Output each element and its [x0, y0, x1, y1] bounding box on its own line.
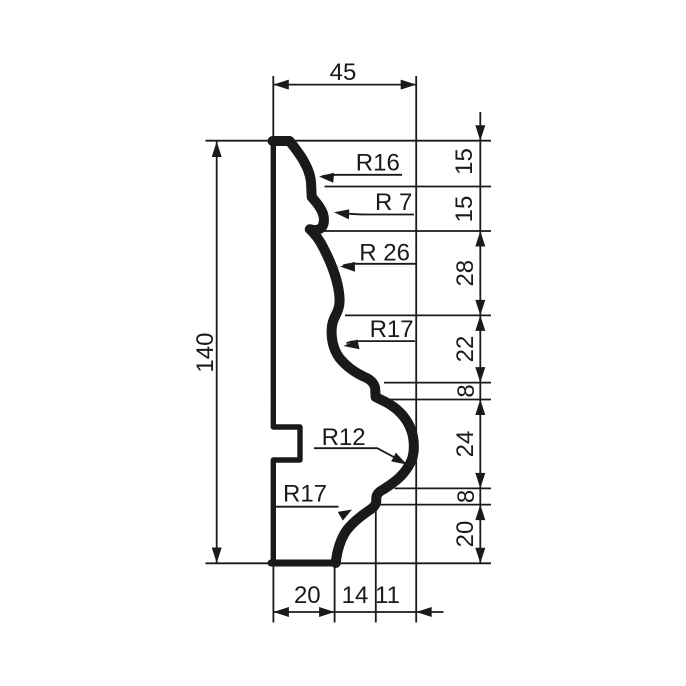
- svg-text:8: 8: [453, 490, 480, 503]
- svg-text:22: 22: [452, 336, 479, 363]
- svg-text:R 7: R 7: [375, 189, 412, 216]
- svg-text:28: 28: [452, 260, 479, 287]
- svg-text:R 26: R 26: [359, 240, 410, 267]
- svg-text:15: 15: [451, 196, 478, 223]
- svg-text:R16: R16: [356, 150, 400, 177]
- svg-text:R12: R12: [322, 424, 366, 451]
- svg-text:14: 14: [342, 582, 369, 609]
- svg-text:20: 20: [452, 521, 479, 548]
- svg-text:11: 11: [375, 582, 400, 609]
- svg-text:R17: R17: [283, 481, 327, 508]
- svg-text:R17: R17: [370, 316, 414, 343]
- svg-text:24: 24: [452, 431, 479, 458]
- svg-text:20: 20: [294, 582, 321, 609]
- svg-text:15: 15: [451, 148, 478, 175]
- svg-text:8: 8: [453, 384, 480, 397]
- svg-text:140: 140: [192, 333, 219, 373]
- svg-text:45: 45: [330, 59, 357, 86]
